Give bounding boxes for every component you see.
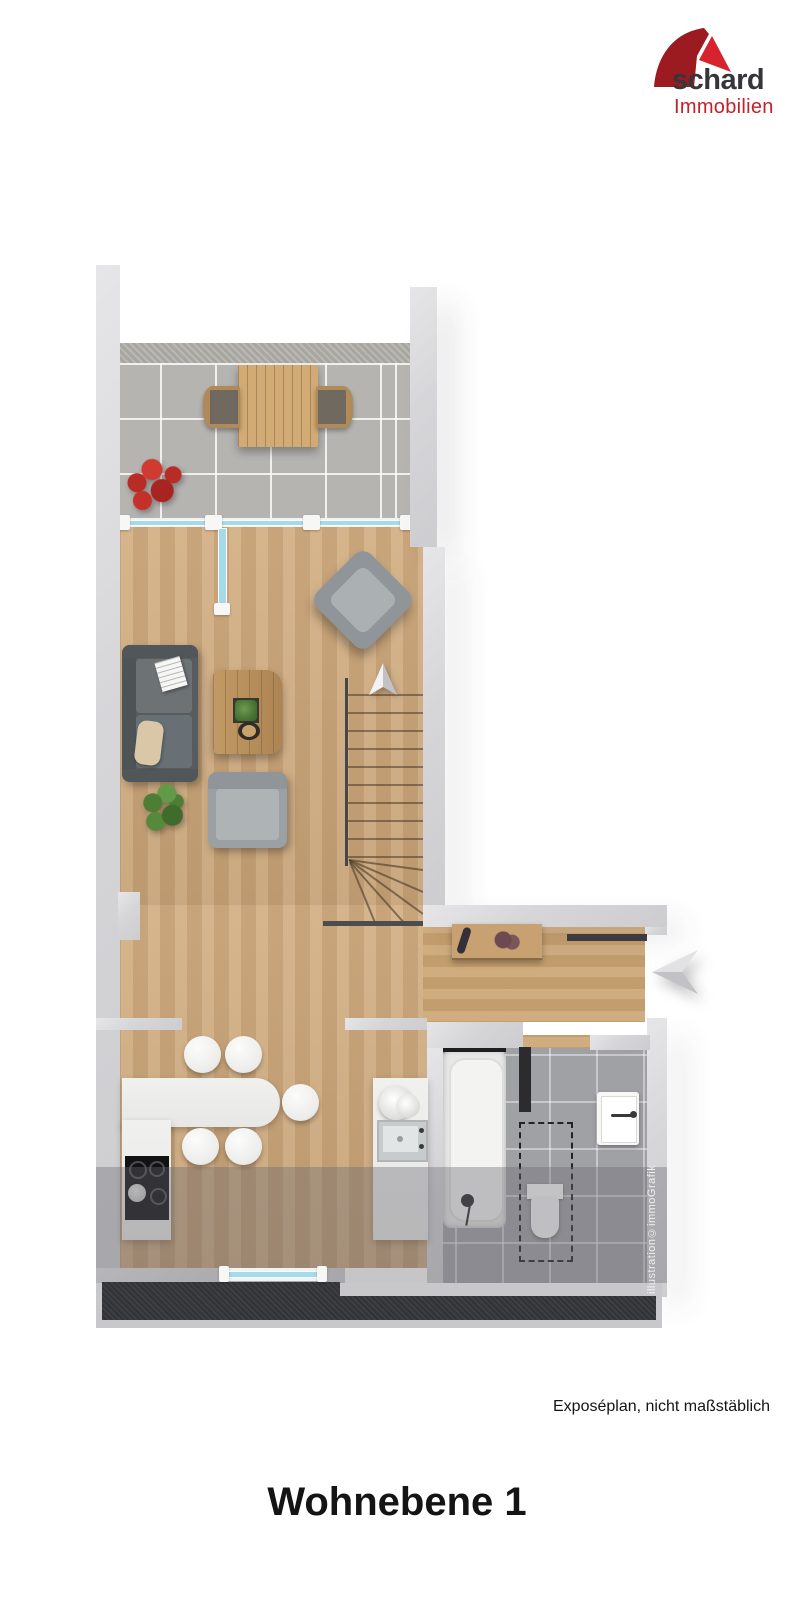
wall-living-right — [423, 547, 445, 907]
table-tray — [238, 722, 260, 740]
illustrator-watermark: illustration©immoGrafik — [646, 1124, 662, 1294]
scale-disclaimer: Exposéplan, nicht maßstäblich — [553, 1398, 770, 1416]
staircase-winder-steps — [348, 858, 423, 925]
bar-stool — [225, 1128, 262, 1165]
plate-small — [396, 1094, 420, 1118]
stairwell-edge — [323, 921, 423, 926]
bar-stool — [282, 1084, 319, 1121]
balcony-chair-left — [203, 386, 240, 428]
green-plant — [136, 778, 192, 840]
faucet-icon — [630, 1111, 637, 1118]
wall-left-pillar — [118, 892, 140, 940]
armchair-backrest — [208, 772, 287, 789]
red-plant — [120, 453, 188, 519]
sofa — [122, 645, 198, 782]
bar-stool — [182, 1128, 219, 1165]
wall-bathroom-top-right — [590, 1035, 650, 1050]
wall-left — [96, 265, 120, 1283]
upper-floor-shadow-overlay — [96, 1167, 667, 1283]
balcony-chair-right — [316, 386, 353, 428]
sofa-backrest — [122, 645, 136, 782]
umbrella — [456, 926, 472, 954]
sink-drain — [397, 1136, 403, 1142]
table-plant — [235, 700, 257, 721]
stair-railing — [345, 678, 348, 866]
reading-armchair — [208, 772, 287, 848]
bar-stool — [184, 1036, 221, 1073]
glass-pane — [120, 520, 410, 526]
window-frame-post — [219, 1266, 229, 1282]
floor-title: Wohnebene 1 — [0, 1480, 794, 1525]
logo-subtitle-text: Immobilien — [674, 96, 774, 119]
faucet-icon — [419, 1128, 424, 1133]
tray-inner — [242, 725, 256, 737]
page: { "logo": { "brand": "schard", "subtitle… — [0, 0, 794, 1615]
glass-screen-vertical — [218, 528, 227, 608]
logo-brand-text: schard — [672, 64, 764, 97]
balcony-parapet-ledge — [120, 343, 410, 363]
window-frame-post — [317, 1266, 327, 1282]
doormat — [567, 934, 647, 941]
sofa-pillow — [133, 720, 164, 767]
kitchen-sink — [377, 1120, 428, 1162]
shower-partition — [519, 1047, 531, 1112]
faucet-icon — [419, 1144, 424, 1149]
wall-stub-kitchen-left — [96, 1018, 182, 1030]
armchair-seat — [328, 565, 399, 636]
washbasin-bowl — [601, 1096, 637, 1143]
wall-bathroom-top-left — [427, 1022, 523, 1048]
sofa-armrest-top — [122, 645, 198, 658]
washbasin — [597, 1092, 639, 1145]
stair-direction-arrow-icon — [366, 662, 400, 698]
bathtub-glass-screen — [443, 1048, 506, 1052]
chair-seat — [210, 390, 238, 424]
terrace-deck-left — [102, 1282, 340, 1320]
bar-stool — [225, 1036, 262, 1073]
terrace-deck-right — [340, 1296, 656, 1320]
door-frame-post — [303, 515, 320, 530]
staircase-straight-flight — [348, 678, 423, 862]
kitchen-window — [223, 1268, 323, 1281]
coffee-table — [213, 670, 282, 754]
glass-pane — [227, 1271, 319, 1278]
armchair-seat — [216, 789, 279, 840]
balcony-dining-table — [238, 365, 318, 447]
gloves — [494, 930, 520, 952]
company-logo: schard Immobilien — [630, 20, 790, 125]
chair-seat — [318, 390, 346, 424]
table-plant-box — [233, 698, 259, 723]
sideboard — [452, 924, 542, 960]
wall-entry-door-jamb — [645, 927, 667, 935]
glass-screen-cap — [214, 603, 230, 615]
bathroom-door-threshold — [523, 1035, 590, 1048]
balcony-glass-door — [120, 518, 410, 527]
entrance-arrow-icon — [650, 946, 702, 998]
wall-stub-kitchen-right — [345, 1018, 427, 1030]
wall-balcony-right — [410, 287, 437, 547]
